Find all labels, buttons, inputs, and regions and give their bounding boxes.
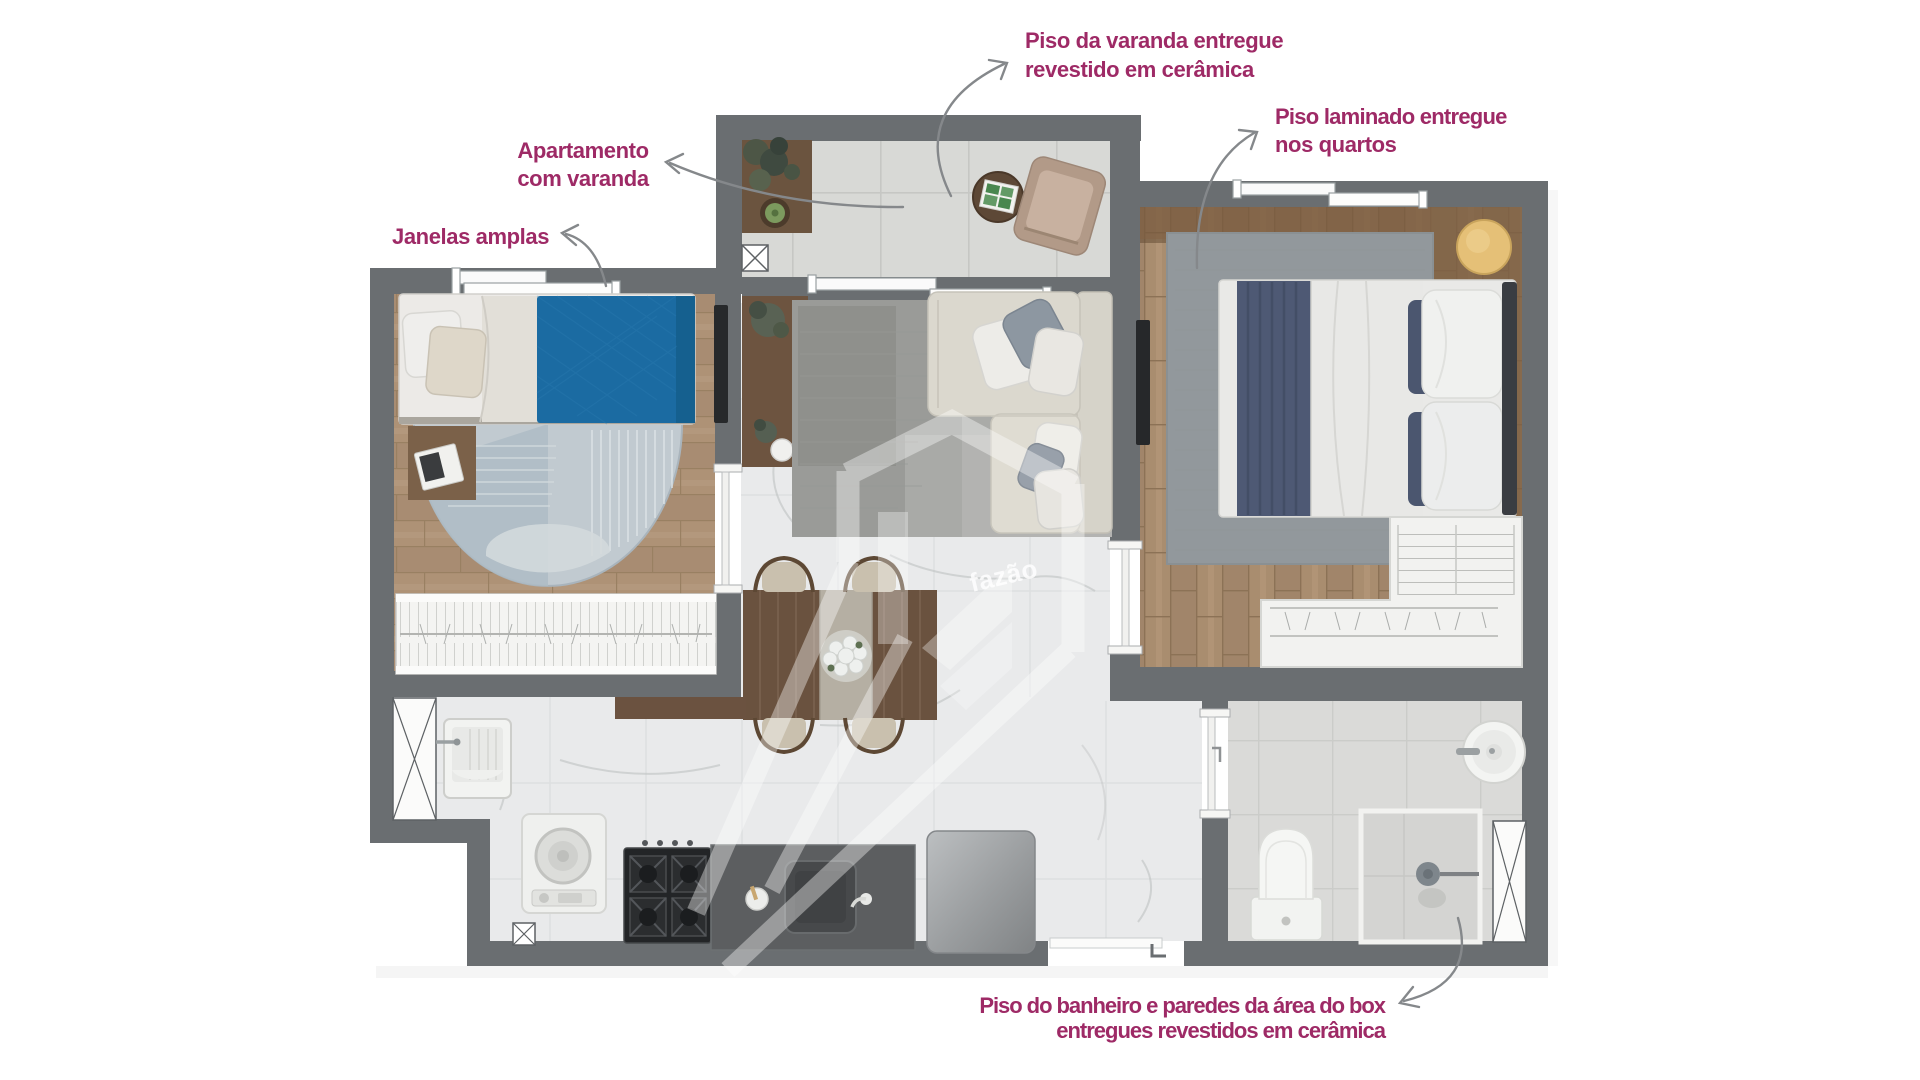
svg-text:Piso da varanda entregue: Piso da varanda entregue	[1025, 28, 1283, 53]
svg-text:Piso laminado entregue: Piso laminado entregue	[1275, 104, 1507, 129]
svg-text:Apartamento: Apartamento	[517, 138, 648, 163]
svg-text:revestido em cerâmica: revestido em cerâmica	[1025, 57, 1255, 82]
svg-text:nos quartos: nos quartos	[1275, 132, 1397, 157]
svg-text:entregues revestidos em cerâmi: entregues revestidos em cerâmica	[1056, 1018, 1387, 1043]
svg-text:com varanda: com varanda	[517, 166, 649, 191]
svg-text:Piso do banheiro e paredes da: Piso do banheiro e paredes da área do bo…	[979, 993, 1386, 1018]
svg-text:Janelas amplas: Janelas amplas	[392, 224, 549, 249]
